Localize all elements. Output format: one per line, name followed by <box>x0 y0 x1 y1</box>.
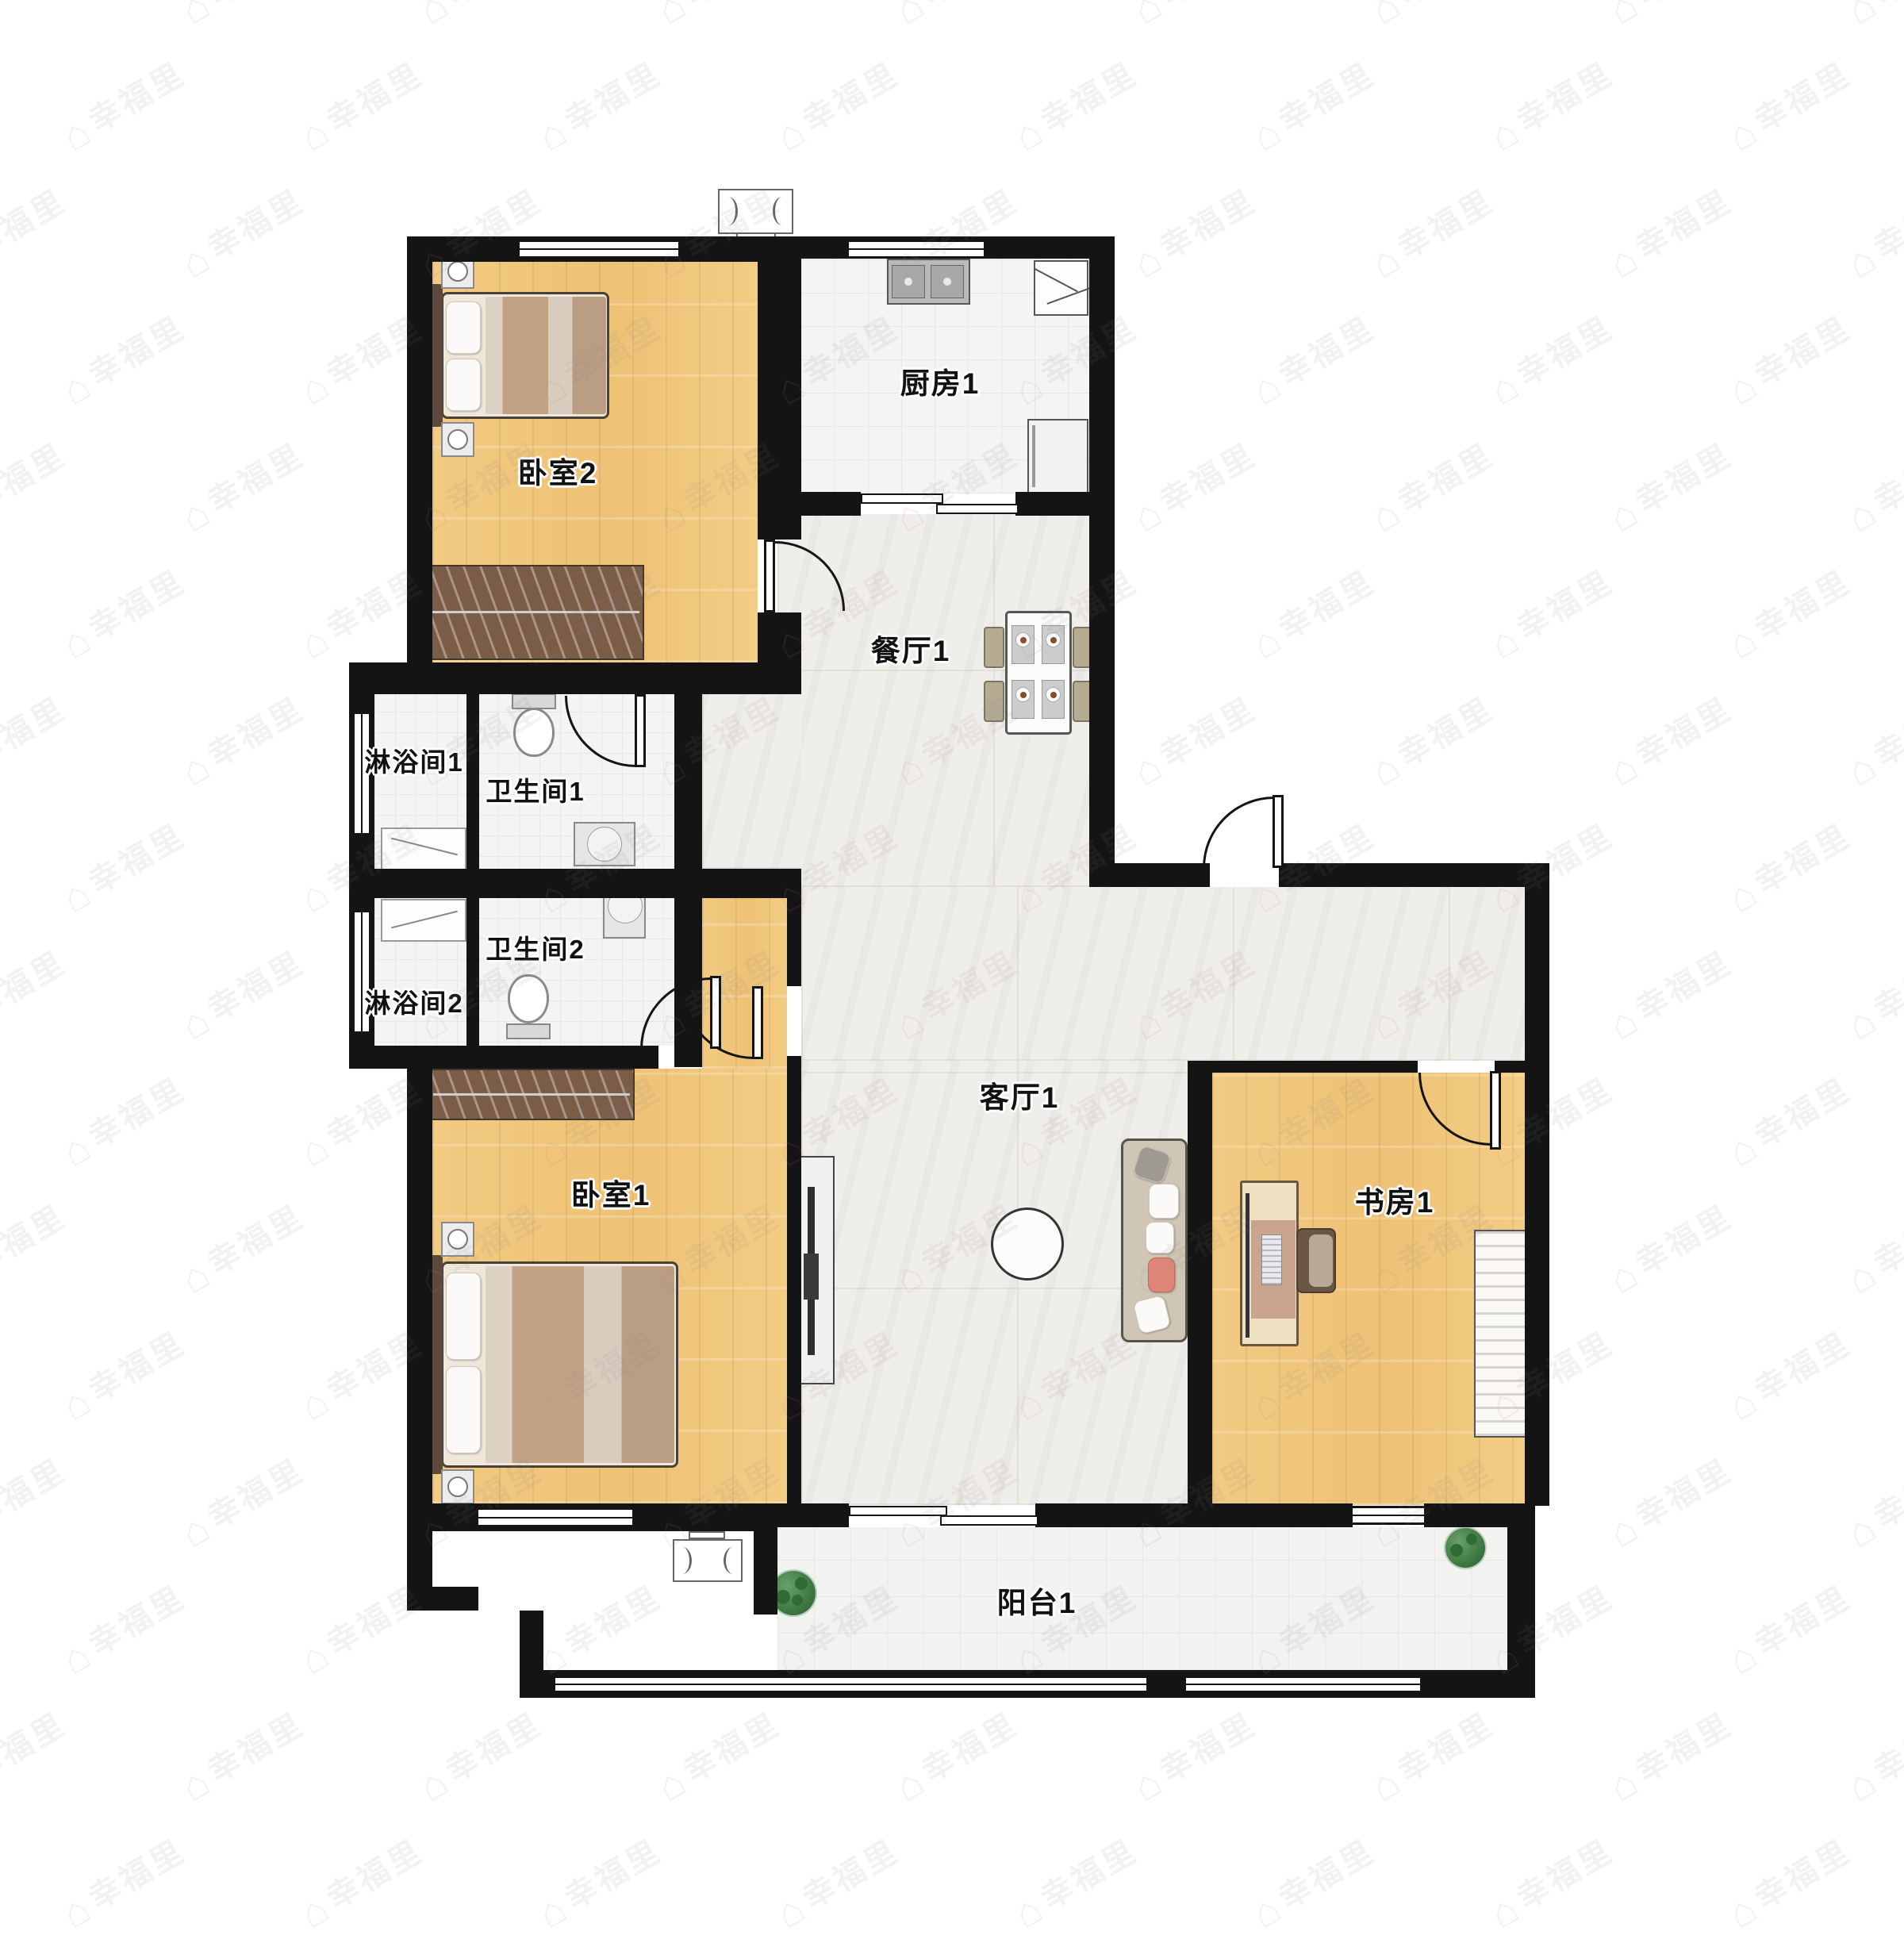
watermark-tile: ⌂幸福里 <box>0 1699 76 1811</box>
watermark-tile: ⌂幸福里 <box>1599 1699 1742 1811</box>
door-leaf <box>635 694 646 767</box>
watermark-tile: ⌂幸福里 <box>1599 0 1742 35</box>
toilet-bowl <box>508 974 549 1023</box>
house-icon: ⌂ <box>1125 488 1173 542</box>
house-icon: ⌂ <box>54 1123 102 1177</box>
toilet-tank <box>512 693 556 709</box>
watermark-tile: ⌂幸福里 <box>0 1191 76 1304</box>
watermark-tile: ⌂幸福里 <box>647 0 790 35</box>
house-icon: ⌂ <box>292 1376 340 1430</box>
house-icon: ⌂ <box>1363 1757 1411 1811</box>
wall-segment <box>349 869 801 898</box>
bed1-pillow <box>446 1366 481 1453</box>
watermark-tile: ⌂幸福里 <box>766 48 909 161</box>
house-icon: ⌂ <box>1839 1757 1887 1811</box>
watermark-tile: ⌂幸福里 <box>171 683 314 796</box>
bed1-pillow <box>446 1273 481 1360</box>
house-icon: ⌂ <box>292 1123 340 1177</box>
office-chair-seat <box>1309 1234 1333 1287</box>
nightstand <box>441 1222 474 1257</box>
house-icon: ⌂ <box>1720 869 1768 923</box>
house-icon: ⌂ <box>1244 361 1292 415</box>
wall-segment <box>787 1056 801 1509</box>
watermark-tile: ⌂幸福里 <box>171 429 314 542</box>
room-label-shower2: 淋浴间2 <box>364 982 463 1020</box>
room-label-bedroom2: 卧室2 <box>518 449 598 492</box>
wall-segment <box>754 1503 849 1527</box>
house-icon: ⌂ <box>292 615 340 669</box>
house-icon: ⌂ <box>1601 0 1649 34</box>
watermark-tile: ⌂幸福里 <box>766 1826 909 1938</box>
wall-segment <box>349 662 801 694</box>
cup <box>1020 692 1027 698</box>
room-label-bedroom1: 卧室1 <box>571 1171 651 1214</box>
tv-box <box>804 1254 819 1300</box>
house-icon: ⌂ <box>1363 234 1411 288</box>
watermark-tile: ⌂幸福里 <box>1361 0 1504 35</box>
house-icon: ⌂ <box>1482 1884 1530 1938</box>
watermark-tile: ⌂幸福里 <box>1004 48 1147 161</box>
window <box>1353 1506 1424 1525</box>
house-icon: ⌂ <box>1601 1503 1649 1557</box>
watermark-tile: ⌂幸福里 <box>1599 937 1742 1050</box>
house-icon: ⌂ <box>1839 488 1887 542</box>
room-label-shower1: 淋浴间1 <box>364 741 463 779</box>
sliding-door-panel <box>936 504 1019 514</box>
house-icon: ⌂ <box>173 742 221 796</box>
house-icon: ⌂ <box>54 1884 102 1938</box>
house-icon: ⌂ <box>1601 742 1649 796</box>
house-icon: ⌂ <box>173 0 221 34</box>
watermark-tile: ⌂幸福里 <box>290 48 433 161</box>
watermark-tile: ⌂幸福里 <box>1123 683 1266 796</box>
door-leaf <box>1490 1071 1501 1150</box>
watermark-tile: ⌂幸福里 <box>1718 1572 1861 1684</box>
cup <box>1050 637 1057 643</box>
watermark-tile: ⌂幸福里 <box>171 1445 314 1557</box>
house-icon: ⌂ <box>887 0 935 34</box>
house-icon: ⌂ <box>1482 361 1530 415</box>
cup <box>1020 637 1027 643</box>
plant-icon <box>1445 1528 1485 1568</box>
watermark-tile: ⌂幸福里 <box>409 1699 552 1811</box>
nightstand <box>441 422 474 457</box>
bed2-pillow <box>446 301 481 354</box>
door-leaf <box>710 976 721 1049</box>
watermark-tile: ⌂幸福里 <box>1837 1445 1904 1557</box>
sofa-pillow <box>1149 1184 1179 1219</box>
entry-door-leaf <box>1273 795 1284 868</box>
sliding-door-panel <box>940 1515 1038 1526</box>
watermark-tile: ⌂幸福里 <box>1123 429 1266 542</box>
watermark-tile: ⌂幸福里 <box>171 175 314 288</box>
house-icon: ⌂ <box>1482 107 1530 161</box>
house-icon: ⌂ <box>411 0 459 34</box>
watermark-tile: ⌂幸福里 <box>0 937 76 1050</box>
sliding-door-panel <box>849 1506 947 1516</box>
house-icon: ⌂ <box>1363 0 1411 34</box>
house-icon: ⌂ <box>292 1884 340 1938</box>
wall-segment <box>1089 259 1115 863</box>
floor-plan-canvas: { "plan": { "type": "apartment-floor-pla… <box>0 0 1904 1904</box>
house-icon: ⌂ <box>54 615 102 669</box>
wall-segment <box>1525 863 1549 1506</box>
house-icon: ⌂ <box>649 1757 697 1811</box>
watermark-tile: ⌂幸福里 <box>1837 683 1904 796</box>
monitor <box>1246 1193 1249 1338</box>
house-icon: ⌂ <box>1601 488 1649 542</box>
house-icon: ⌂ <box>1601 1250 1649 1304</box>
house-icon: ⌂ <box>649 0 697 34</box>
room-label-bath2: 卫生间2 <box>486 928 585 966</box>
watermark-tile: ⌂幸福里 <box>1599 683 1742 796</box>
watermark-tile: ⌂幸福里 <box>171 1191 314 1304</box>
wardrobe-bedroom2 <box>427 565 644 660</box>
house-icon: ⌂ <box>1839 996 1887 1050</box>
house-icon: ⌂ <box>1720 1123 1768 1177</box>
watermark-tile: ⌂幸福里 <box>0 683 76 796</box>
house-icon: ⌂ <box>887 1757 935 1811</box>
house-icon: ⌂ <box>1006 1884 1054 1938</box>
nightstand <box>441 1469 474 1504</box>
door-leaf <box>752 986 763 1059</box>
watermark-tile: ⌂幸福里 <box>1718 1826 1861 1938</box>
watermark-tile: ⌂幸福里 <box>1718 48 1861 161</box>
wall-segment <box>1188 1061 1212 1505</box>
house-icon: ⌂ <box>173 488 221 542</box>
watermark-tile: ⌂幸福里 <box>52 1572 195 1684</box>
wall-segment <box>1424 1503 1535 1527</box>
house-icon: ⌂ <box>1125 742 1173 796</box>
watermark-tile: ⌂幸福里 <box>0 429 76 542</box>
watermark-tile: ⌂幸福里 <box>171 1699 314 1811</box>
balcony-rail <box>555 1676 1146 1693</box>
wall-segment <box>466 692 479 1049</box>
house-icon: ⌂ <box>292 869 340 923</box>
wall-segment <box>1188 1061 1418 1073</box>
house-icon: ⌂ <box>1125 0 1173 34</box>
wall-segment <box>758 612 801 665</box>
room-label-kitchen: 厨房1 <box>900 359 981 402</box>
watermark-tile: ⌂幸福里 <box>0 1445 76 1557</box>
watermark-tile: ⌂幸福里 <box>1837 429 1904 542</box>
wall-segment <box>407 236 432 670</box>
plant-icon <box>771 1571 816 1615</box>
wall-segment <box>432 1587 478 1611</box>
watermark-tile: ⌂幸福里 <box>1599 1191 1742 1304</box>
house-icon: ⌂ <box>173 1503 221 1557</box>
watermark-tile: ⌂幸福里 <box>171 0 314 35</box>
house-icon: ⌂ <box>1720 361 1768 415</box>
house-icon: ⌂ <box>173 1250 221 1304</box>
watermark-tile: ⌂幸福里 <box>409 0 552 35</box>
house-icon: ⌂ <box>54 1630 102 1684</box>
toilet-bowl <box>513 708 555 757</box>
sink-basin <box>587 827 622 862</box>
house-icon: ⌂ <box>54 107 102 161</box>
house-icon: ⌂ <box>54 869 102 923</box>
house-icon: ⌂ <box>768 1884 816 1938</box>
watermark-tile: ⌂幸福里 <box>1480 48 1623 161</box>
wall-segment <box>1035 1503 1353 1527</box>
wall-segment <box>758 259 801 539</box>
room-label-dining: 餐厅1 <box>871 627 951 670</box>
watermark-tile: ⌂幸福里 <box>52 48 195 161</box>
watermark-tile: ⌂幸福里 <box>1123 0 1266 35</box>
watermark-tile: ⌂幸福里 <box>52 1826 195 1938</box>
watermark-tile: ⌂幸福里 <box>1837 175 1904 288</box>
watermark-tile: ⌂幸福里 <box>1242 48 1385 161</box>
house-icon: ⌂ <box>1601 1757 1649 1811</box>
balcony-rail <box>1186 1676 1420 1693</box>
fridge-handle <box>1032 425 1035 487</box>
watermark-tile: ⌂幸福里 <box>1718 1064 1861 1177</box>
house-icon: ⌂ <box>411 1757 459 1811</box>
house-icon: ⌂ <box>292 361 340 415</box>
ac-tab <box>689 1531 725 1539</box>
house-icon: ⌂ <box>1720 107 1768 161</box>
toilet-tank <box>506 1023 551 1039</box>
watermark-tile: ⌂幸福里 <box>1480 556 1623 669</box>
room-label-study: 书房1 <box>1355 1178 1435 1221</box>
house-icon: ⌂ <box>1006 107 1054 161</box>
coffee-table <box>991 1208 1064 1281</box>
watermark-tile: ⌂幸福里 <box>1361 175 1504 288</box>
house-icon: ⌂ <box>530 1884 578 1938</box>
watermark-tile: ⌂幸福里 <box>1718 556 1861 669</box>
house-icon: ⌂ <box>1839 0 1887 34</box>
house-icon: ⌂ <box>1244 615 1292 669</box>
watermark-tile: ⌂幸福里 <box>528 48 671 161</box>
house-icon: ⌂ <box>1720 1884 1768 1938</box>
watermark-tile: ⌂幸福里 <box>1718 1318 1861 1430</box>
dining-chair <box>984 627 1004 668</box>
house-icon: ⌂ <box>1601 996 1649 1050</box>
house-icon: ⌂ <box>1839 1250 1887 1304</box>
house-icon: ⌂ <box>1720 615 1768 669</box>
watermark-tile: ⌂幸福里 <box>1718 810 1861 923</box>
living-floor-upper <box>801 887 1525 1061</box>
house-icon: ⌂ <box>173 234 221 288</box>
house-icon: ⌂ <box>1720 1630 1768 1684</box>
wall-segment <box>1507 1527 1535 1698</box>
entry-door-arc <box>1203 797 1274 868</box>
sofa-pillow <box>1146 1222 1174 1254</box>
room-label-balcony: 阳台1 <box>997 1579 1077 1622</box>
house-icon: ⌂ <box>292 107 340 161</box>
house-icon: ⌂ <box>1363 742 1411 796</box>
watermark-tile: ⌂幸福里 <box>1242 556 1385 669</box>
house-icon: ⌂ <box>1720 1376 1768 1430</box>
house-icon: ⌂ <box>530 107 578 161</box>
watermark-tile: ⌂幸福里 <box>52 1064 195 1177</box>
house-icon: ⌂ <box>173 1757 221 1811</box>
bed1-blanket <box>486 1266 674 1463</box>
house-icon: ⌂ <box>54 361 102 415</box>
watermark-tile: ⌂幸福里 <box>1361 429 1504 542</box>
house-icon: ⌂ <box>173 996 221 1050</box>
window <box>478 1507 632 1527</box>
watermark-tile: ⌂幸福里 <box>1599 175 1742 288</box>
watermark-tile: ⌂幸福里 <box>171 937 314 1050</box>
watermark-tile: ⌂幸福里 <box>1480 1826 1623 1938</box>
balcony-floor <box>777 1527 1507 1670</box>
keyboard <box>1261 1234 1282 1285</box>
watermark-tile: ⌂幸福里 <box>1837 0 1904 35</box>
watermark-tile: ⌂幸福里 <box>52 810 195 923</box>
door-leaf <box>764 539 775 612</box>
house-icon: ⌂ <box>1244 1884 1292 1938</box>
watermark-tile: ⌂幸福里 <box>52 556 195 669</box>
shower-tray <box>381 827 466 870</box>
watermark-tile: ⌂幸福里 <box>1123 175 1266 288</box>
watermark-tile: ⌂幸福里 <box>1361 1699 1504 1811</box>
wall-segment <box>349 1046 658 1069</box>
house-icon: ⌂ <box>1601 234 1649 288</box>
house-icon: ⌂ <box>768 107 816 161</box>
room-label-bath1: 卫生间1 <box>486 770 585 808</box>
watermark-tile: ⌂幸福里 <box>528 1572 671 1684</box>
watermark-tile: ⌂幸福里 <box>1242 1826 1385 1938</box>
house-icon: ⌂ <box>292 1630 340 1684</box>
watermark-tile: ⌂幸福里 <box>52 1318 195 1430</box>
watermark-tile: ⌂幸福里 <box>885 1699 1028 1811</box>
watermark-tile: ⌂幸福里 <box>52 302 195 415</box>
sofa-pillow <box>1148 1257 1175 1292</box>
house-icon: ⌂ <box>54 1376 102 1430</box>
kitchen-corner-cabinet <box>1034 260 1088 316</box>
watermark-tile: ⌂幸福里 <box>1599 1445 1742 1557</box>
house-icon: ⌂ <box>1125 1757 1173 1811</box>
watermark-tile: ⌂幸福里 <box>1837 1191 1904 1304</box>
watermark-tile: ⌂幸福里 <box>647 1699 790 1811</box>
bookshelf <box>1474 1230 1528 1438</box>
bed2-pillow <box>446 359 481 411</box>
fridge <box>1027 419 1088 493</box>
window <box>849 240 984 259</box>
watermark-tile: ⌂幸福里 <box>1123 1699 1266 1811</box>
wall-segment <box>754 1527 777 1615</box>
dining-chair <box>984 681 1004 722</box>
watermark-tile: ⌂幸福里 <box>528 1826 671 1938</box>
sink-drain <box>904 278 912 286</box>
wall-segment <box>787 897 801 986</box>
room-label-living: 客厅1 <box>980 1073 1060 1116</box>
cup <box>1050 692 1057 698</box>
watermark-tile: ⌂幸福里 <box>1599 429 1742 542</box>
house-icon: ⌂ <box>1482 615 1530 669</box>
wall-segment <box>1495 1061 1549 1073</box>
house-icon: ⌂ <box>1363 488 1411 542</box>
house-icon: ⌂ <box>1839 742 1887 796</box>
watermark-tile: ⌂幸福里 <box>0 0 76 35</box>
watermark-tile: ⌂幸福里 <box>1004 1826 1147 1938</box>
watermark-tile: ⌂幸福里 <box>1837 937 1904 1050</box>
wardrobe-bedroom1 <box>428 1069 635 1120</box>
sink-drain <box>943 278 951 286</box>
watermark-tile: ⌂幸福里 <box>290 1826 433 1938</box>
sliding-door-panel <box>861 493 943 504</box>
watermark-tile: ⌂幸福里 <box>1480 302 1623 415</box>
watermark-tile: ⌂幸福里 <box>1242 302 1385 415</box>
watermark-tile: ⌂幸福里 <box>0 175 76 288</box>
house-icon: ⌂ <box>1125 234 1173 288</box>
house-icon: ⌂ <box>1839 234 1887 288</box>
wall-segment <box>801 492 861 516</box>
window <box>520 240 678 259</box>
wall-segment <box>1089 863 1210 887</box>
wall-segment <box>407 1067 432 1611</box>
watermark-tile: ⌂幸福里 <box>1837 1699 1904 1811</box>
wall-segment <box>1279 863 1549 887</box>
watermark-tile: ⌂幸福里 <box>885 0 1028 35</box>
watermark-tile: ⌂幸福里 <box>1361 683 1504 796</box>
watermark-tile: ⌂幸福里 <box>1718 302 1861 415</box>
house-icon: ⌂ <box>1244 107 1292 161</box>
house-icon: ⌂ <box>1839 1503 1887 1557</box>
bed2-blanket <box>486 297 606 414</box>
bath-lobby-floor <box>702 692 801 869</box>
